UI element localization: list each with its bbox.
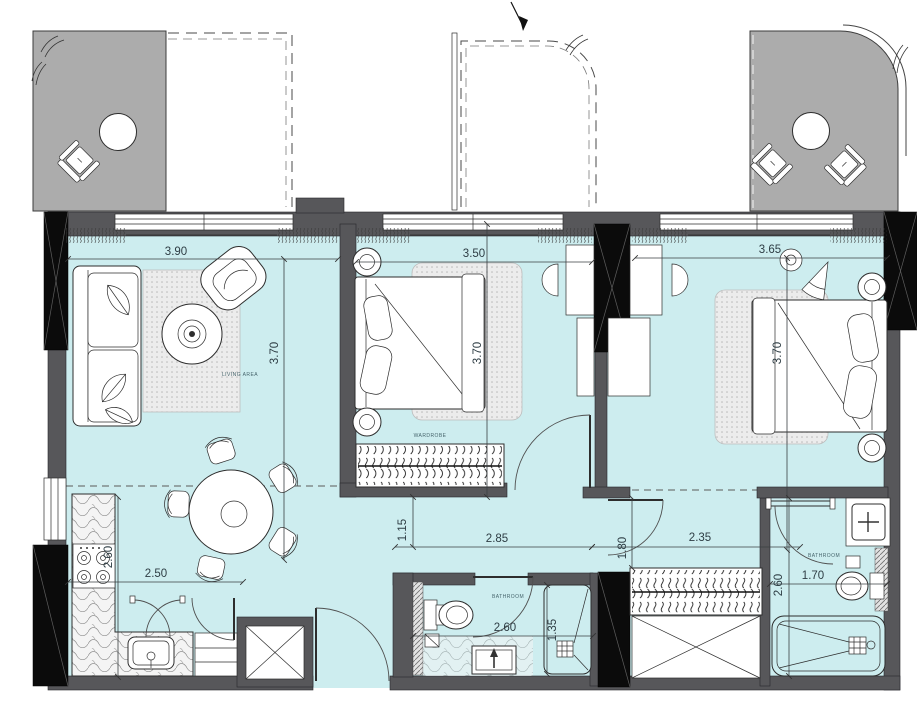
patio-table	[793, 113, 830, 150]
nightstand-lamp	[858, 434, 886, 462]
nightstand-lamp	[353, 408, 381, 436]
dim-bedroom2-depth: 3.70	[772, 342, 784, 364]
balcony-divider-stub	[296, 198, 344, 213]
dim-bedroom1-depth: 3.70	[472, 342, 484, 364]
shower-drain	[557, 641, 573, 657]
window-bedroom1	[383, 214, 563, 230]
dim-bathroom-ensuite-width: 1.70	[802, 570, 824, 582]
bed-footboard	[753, 298, 775, 434]
dim-bedroom2-width: 3.65	[759, 244, 781, 256]
toilet	[424, 600, 473, 630]
patio-table	[100, 114, 137, 151]
refrigerator-closet	[246, 626, 304, 679]
balcony-top-left	[32, 31, 292, 211]
column-right	[884, 212, 917, 330]
dim-shower-width: 1.35	[547, 619, 559, 641]
curtain-icon	[277, 228, 339, 243]
dim-bedroom2-lobby: 2.35	[689, 532, 711, 544]
window-bedroom2	[660, 214, 853, 230]
curtain-icon	[632, 228, 688, 243]
dim-kitchen-width: 2.50	[145, 568, 167, 580]
tub-drain	[849, 637, 866, 654]
label-bathroom-ensuite: BATHROOM	[808, 553, 840, 559]
entry-arrow	[511, 2, 528, 31]
balcony-divider-wall	[452, 33, 457, 210]
label-bathroom-main: BATHROOM	[492, 594, 524, 600]
balcony-right-door-swing-marks	[893, 45, 908, 73]
window-living	[115, 214, 293, 230]
nightstand-lamp	[858, 273, 886, 301]
floor-plan: 3.90 3.70 3.50 3.70 3.65 3.70 2.50 2.60 …	[0, 0, 917, 716]
curtain-icon	[830, 228, 887, 243]
dim-bedroom2-opening: 1.80	[617, 537, 629, 559]
balcony-top-right	[748, 25, 908, 211]
bathroom-main-duct-wall	[413, 582, 423, 675]
kitchen-sink	[128, 637, 174, 669]
shelf	[608, 318, 650, 396]
wardrobe-bedroom1	[356, 444, 504, 487]
curtain-icon	[538, 228, 592, 243]
sofa	[73, 266, 141, 428]
dim-bathroom-main-width: 2.60	[494, 622, 516, 634]
dim-hall-offset: 1.15	[397, 519, 409, 541]
bed-bedroom1	[355, 274, 485, 412]
washbasin	[472, 646, 516, 674]
shaft-bottom-left	[33, 545, 68, 686]
storage-unit	[632, 616, 760, 678]
dim-kitchen-depth: 2.60	[103, 546, 115, 568]
label-wardrobe: WARDROBE	[414, 433, 447, 439]
shaft-bottom-middle	[598, 572, 630, 687]
balcony-left-dashed-outline	[168, 33, 292, 207]
cistern-box	[846, 556, 860, 568]
coffee-table	[162, 304, 222, 364]
wardrobe-bedroom2	[630, 568, 762, 615]
floor-plan-canvas: 3.90 3.70 3.50 3.70 3.65 3.70 2.50 2.60 …	[0, 0, 917, 716]
curtain-icon	[66, 228, 126, 243]
balcony-middle-door-swing-marks	[566, 35, 588, 55]
side-table	[780, 249, 802, 271]
vanity-sink	[846, 498, 890, 546]
label-living-area: LIVING AREA	[222, 372, 258, 378]
bed-bedroom2	[752, 298, 887, 434]
dim-hall-width: 2.85	[486, 533, 508, 545]
curtain-icon	[356, 228, 410, 243]
window-left-wall	[44, 478, 66, 540]
balcony-middle	[452, 33, 596, 210]
dim-living-width: 3.90	[165, 246, 187, 258]
dim-bathroom-ensuite-depth: 2.60	[773, 574, 785, 596]
column-left	[44, 212, 68, 350]
dim-living-depth: 3.70	[269, 342, 281, 364]
dim-bedroom1-width: 3.50	[463, 248, 485, 260]
shelf	[577, 318, 594, 396]
